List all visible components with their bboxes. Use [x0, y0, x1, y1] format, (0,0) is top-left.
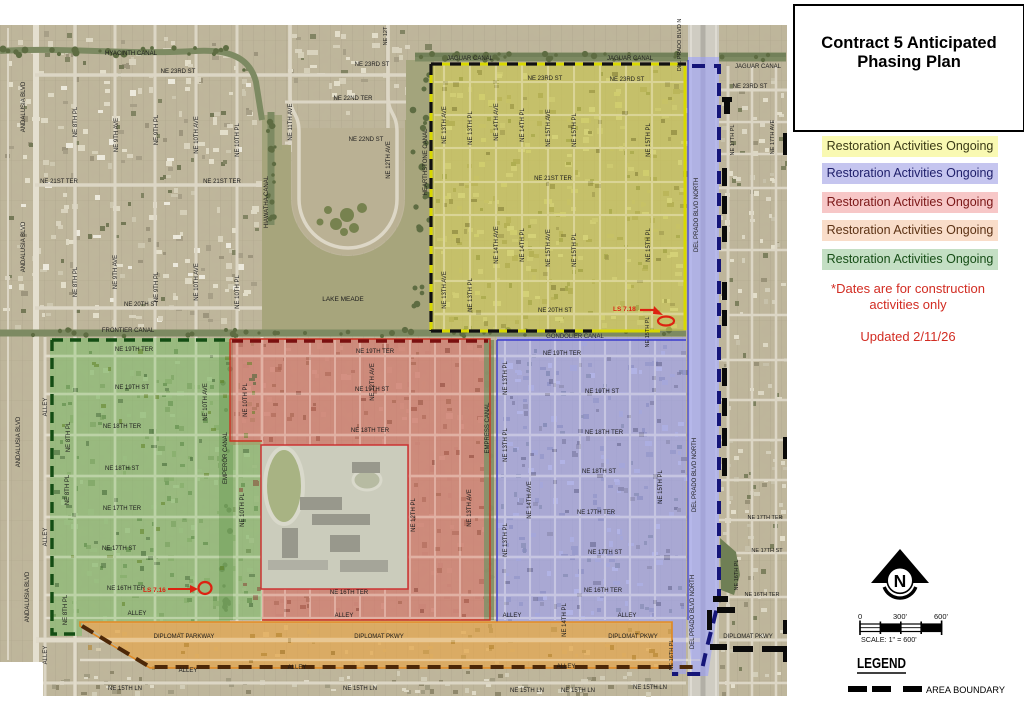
svg-text:NE 19TH TER: NE 19TH TER	[543, 351, 582, 357]
svg-text:NE 23RD ST: NE 23RD ST	[610, 77, 645, 83]
svg-text:DEL PRADO BLVD NORTH: DEL PRADO BLVD NORTH	[694, 178, 700, 252]
svg-text:NE 18TH TER: NE 18TH TER	[585, 430, 624, 436]
svg-text:NE 13TH PL: NE 13TH PL	[503, 361, 509, 395]
svg-text:ANDALUSIA BLVD: ANDALUSIA BLVD	[21, 221, 27, 272]
svg-text:NE 23RD ST: NE 23RD ST	[528, 76, 563, 82]
svg-text:NE 15TH PL: NE 15TH PL	[572, 233, 578, 267]
svg-text:DIPLOMAT PARKWAY: DIPLOMAT PARKWAY	[154, 634, 215, 640]
svg-text:NE 13TH PL: NE 13TH PL	[468, 278, 474, 312]
svg-text:LEGEND: LEGEND	[857, 655, 906, 672]
svg-text:NE 11TH AVE: NE 11TH AVE	[288, 103, 294, 140]
svg-text:NE 14TH PL: NE 14TH PL	[562, 603, 568, 637]
svg-text:DEL PRADO BLVD NORTH: DEL PRADO BLVD NORTH	[692, 438, 698, 512]
svg-text:NE 12T: NE 12T	[383, 26, 389, 45]
svg-text:JAGUAR CANAL: JAGUAR CANAL	[447, 56, 494, 62]
svg-text:ALLEY: ALLEY	[557, 664, 576, 670]
svg-text:NE 10TH PL: NE 10TH PL	[240, 493, 246, 527]
svg-text:EMPEROR CANAL: EMPEROR CANAL	[223, 431, 229, 484]
svg-text:ANDALUSIA BLVD: ANDALUSIA BLVD	[16, 416, 22, 467]
svg-text:NE 13TH AVE: NE 13TH AVE	[442, 271, 448, 309]
svg-text:NE 12TH PL: NE 12TH PL	[411, 498, 417, 532]
svg-text:ALLEY: ALLEY	[179, 668, 198, 674]
svg-text:NE 8TH PL: NE 8TH PL	[73, 266, 79, 297]
svg-text:ALLEY: ALLEY	[43, 646, 49, 665]
svg-text:NE 16TH TER: NE 16TH TER	[107, 586, 146, 592]
svg-text:600': 600'	[934, 612, 949, 621]
svg-text:NE 18TH ST: NE 18TH ST	[105, 466, 139, 472]
svg-text:NE 14TH PL: NE 14TH PL	[520, 228, 526, 262]
svg-text:NE 17TH PL: NE 17TH PL	[730, 125, 736, 156]
svg-text:NE 19TH TER: NE 19TH TER	[356, 349, 395, 355]
svg-text:NE 15TH PL: NE 15TH PL	[645, 317, 651, 348]
svg-text:NE 16TH PL: NE 16TH PL	[734, 560, 740, 591]
svg-text:NE 10TH PL: NE 10TH PL	[235, 123, 241, 157]
svg-text:NE 9TH AVE: NE 9TH AVE	[114, 118, 120, 152]
svg-text:NE 13TH PL: NE 13TH PL	[503, 523, 509, 557]
svg-text:NE 23RD ST: NE 23RD ST	[355, 62, 390, 68]
svg-text:NE 10TH AVE: NE 10TH AVE	[194, 263, 200, 301]
svg-text:0: 0	[858, 612, 862, 621]
svg-text:NE 13TH PL: NE 13TH PL	[503, 428, 509, 462]
svg-text:NE 8TH PL: NE 8TH PL	[66, 421, 72, 452]
svg-text:NE 15TH PL: NE 15TH PL	[646, 123, 652, 157]
svg-text:NE 16TH TER: NE 16TH TER	[744, 592, 779, 598]
svg-text:NE 10TH PL: NE 10TH PL	[235, 275, 241, 309]
svg-text:ALLEY: ALLEY	[128, 611, 147, 617]
svg-text:NE 15TH AVE: NE 15TH AVE	[546, 229, 552, 267]
svg-text:NE 15TH LN: NE 15TH LN	[343, 686, 377, 692]
svg-text:HEARTHSTONE CANAL: HEARTHSTONE CANAL	[423, 128, 429, 195]
svg-text:NE 8TH PL: NE 8TH PL	[65, 474, 71, 505]
svg-text:NE 8TH PL: NE 8TH PL	[73, 106, 79, 137]
svg-text:NE 19TH TER: NE 19TH TER	[115, 347, 154, 353]
svg-text:NE 9TH AVE: NE 9TH AVE	[113, 255, 119, 289]
svg-text:NE 15TH LN: NE 15TH LN	[108, 686, 142, 692]
svg-text:NE 21ST TER: NE 21ST TER	[534, 176, 572, 182]
svg-text:NE 19TH ST: NE 19TH ST	[585, 389, 619, 395]
svg-text:NE 16TH TER: NE 16TH TER	[330, 590, 369, 596]
svg-text:NE 20TH ST: NE 20TH ST	[538, 308, 572, 314]
svg-text:NE 22ND TER: NE 22ND TER	[334, 96, 374, 102]
svg-text:ALLEY: ALLEY	[503, 613, 522, 619]
svg-text:NE 9TH PL: NE 9TH PL	[154, 271, 160, 302]
svg-text:AREA BOUNDARY: AREA BOUNDARY	[926, 685, 1005, 695]
svg-text:DIPLOMAT PKWY: DIPLOMAT PKWY	[723, 634, 772, 640]
svg-text:NE 19TH ST: NE 19TH ST	[115, 385, 149, 391]
svg-text:DEL PRADO BLVD NORTH: DEL PRADO BLVD NORTH	[690, 575, 696, 649]
svg-text:NE 17TH TER: NE 17TH TER	[747, 515, 782, 521]
svg-text:NE 15TH AVE: NE 15TH AVE	[546, 109, 552, 147]
svg-text:300': 300'	[893, 612, 908, 621]
svg-text:NE 16TH TER: NE 16TH TER	[584, 588, 623, 594]
svg-text:NE 10TH AVE: NE 10TH AVE	[194, 116, 200, 154]
svg-text:NE 14TH AVE: NE 14TH AVE	[494, 103, 500, 141]
svg-text:ALLEY: ALLEY	[288, 665, 307, 671]
svg-text:EMPRESS CANAL: EMPRESS CANAL	[485, 402, 491, 454]
svg-text:NE 21ST TER: NE 21ST TER	[203, 179, 241, 185]
svg-text:NE 17TH TER: NE 17TH TER	[577, 510, 616, 516]
svg-text:NE 15TH PL: NE 15TH PL	[646, 228, 652, 262]
svg-text:NE 22ND ST: NE 22ND ST	[349, 137, 384, 143]
svg-text:NE 15TH PL: NE 15TH PL	[658, 470, 664, 504]
svg-text:NE 17TH ST: NE 17TH ST	[588, 550, 622, 556]
svg-text:LS 7.18: LS 7.18	[613, 306, 636, 313]
svg-text:NE 15TH LN: NE 15TH LN	[633, 685, 667, 691]
svg-text:NE 12TH AVE: NE 12TH AVE	[370, 363, 376, 401]
svg-text:NE 18TH TER: NE 18TH TER	[351, 428, 390, 434]
svg-text:NE 23RD ST: NE 23RD ST	[161, 69, 196, 75]
svg-text:ALLEY: ALLEY	[43, 398, 49, 417]
svg-text:HIAWATHA CANAL: HIAWATHA CANAL	[264, 175, 270, 228]
svg-text:N: N	[894, 571, 907, 591]
svg-text:NE 18TH TER: NE 18TH TER	[103, 424, 142, 430]
svg-text:DIPLOMAT PKWY: DIPLOMAT PKWY	[608, 634, 657, 640]
svg-text:NE 17TH ST: NE 17TH ST	[102, 546, 136, 552]
svg-text:GONDOLIER CANAL: GONDOLIER CANAL	[546, 334, 604, 340]
svg-text:NE 10TH PL: NE 10TH PL	[243, 383, 249, 417]
svg-text:NE 13TH PL: NE 13TH PL	[468, 111, 474, 145]
svg-text:NE 15TH PL: NE 15TH PL	[572, 113, 578, 147]
svg-text:NE 10TH AVE: NE 10TH AVE	[203, 383, 209, 421]
svg-text:HYACINTH CANAL: HYACINTH CANAL	[105, 51, 158, 57]
svg-text:ANDALUSIA BLVD: ANDALUSIA BLVD	[21, 81, 27, 132]
svg-text:NE 13TH AVE: NE 13TH AVE	[442, 106, 448, 144]
svg-text:NE 14TH AVE: NE 14TH AVE	[527, 481, 533, 519]
svg-text:ANDALUSIA BLVD: ANDALUSIA BLVD	[25, 571, 31, 622]
svg-text:NE 17TH AVE: NE 17TH AVE	[770, 119, 776, 154]
svg-text:NE 23RD ST: NE 23RD ST	[733, 84, 768, 90]
svg-text:NE 15TH LN: NE 15TH LN	[561, 688, 595, 694]
svg-text:NE 15TH LN: NE 15TH LN	[510, 688, 544, 694]
svg-text:NE 12TH AVE: NE 12TH AVE	[386, 141, 392, 179]
svg-text:ALLEY: ALLEY	[335, 613, 354, 619]
svg-text:SCALE: 1" = 600': SCALE: 1" = 600'	[861, 635, 917, 644]
svg-text:LS 7.16: LS 7.16	[143, 587, 166, 594]
svg-text:JAGUAR CANAL: JAGUAR CANAL	[607, 56, 654, 62]
svg-text:ALLEY: ALLEY	[43, 528, 49, 547]
svg-text:DIPLOMAT PKWY: DIPLOMAT PKWY	[354, 634, 403, 640]
svg-text:NE 17TH TER: NE 17TH TER	[103, 506, 142, 512]
svg-text:FRONTIER CANAL: FRONTIER CANAL	[102, 328, 155, 334]
svg-text:NE 14TH AVE: NE 14TH AVE	[494, 226, 500, 264]
svg-text:NE 21ST TER: NE 21ST TER	[40, 179, 78, 185]
svg-text:NE 17TH ST: NE 17TH ST	[751, 548, 783, 554]
svg-text:NE 9TH PL: NE 9TH PL	[154, 114, 160, 145]
svg-text:JAGUAR CANAL: JAGUAR CANAL	[735, 64, 782, 70]
svg-text:NE 13TH AVE: NE 13TH AVE	[467, 489, 473, 527]
svg-text:LAKE MEADE: LAKE MEADE	[322, 296, 364, 303]
svg-text:NE 8TH PL: NE 8TH PL	[63, 594, 69, 625]
svg-text:ALLEY: ALLEY	[618, 613, 637, 619]
svg-text:NE 18TH ST: NE 18TH ST	[582, 469, 616, 475]
svg-text:NE 16TH PL: NE 16TH PL	[669, 640, 675, 671]
svg-text:DEL PRADO BLVD N: DEL PRADO BLVD N	[677, 19, 683, 72]
svg-text:NE 14TH PL: NE 14TH PL	[520, 108, 526, 142]
